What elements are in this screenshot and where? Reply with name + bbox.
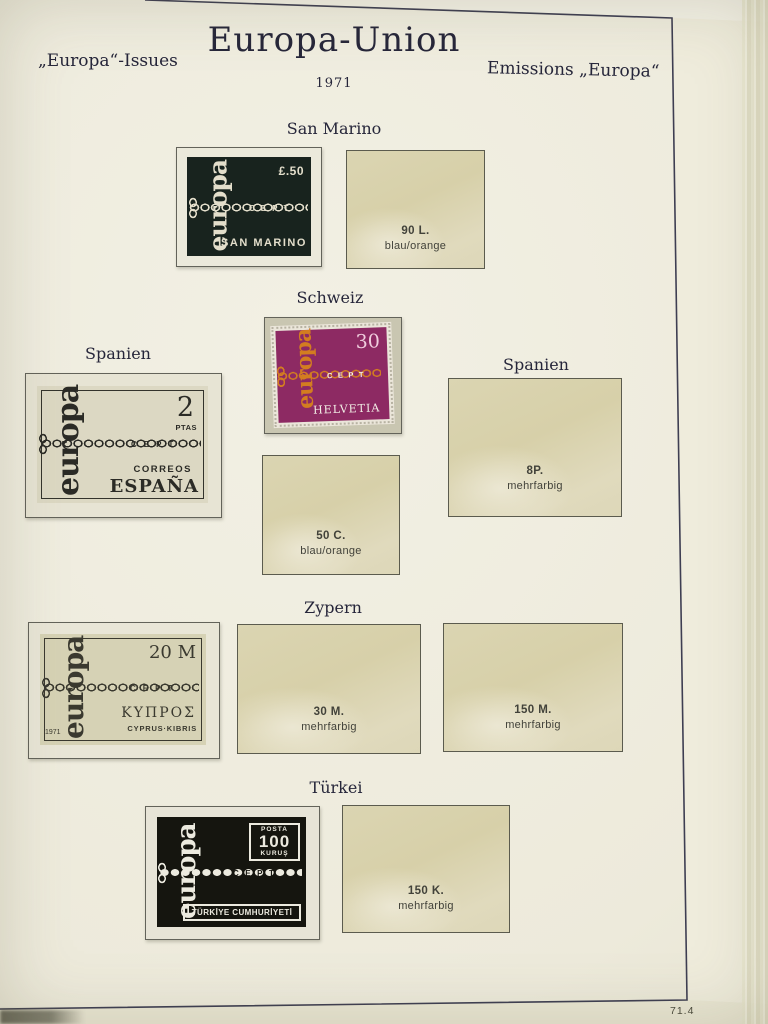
stamp-cept-text: CEPT xyxy=(249,204,294,213)
stamp-country-line2: CYPRUS·KIBRIS xyxy=(127,724,197,733)
placeholder-color-note: mehrfarbig xyxy=(449,480,621,492)
placeholder-text: 50 C. blau/orange xyxy=(263,530,399,557)
page-title: Europa-Union xyxy=(208,20,461,60)
stamp-value-unit: KURUŞ xyxy=(251,850,298,857)
stamp-value: 20 M xyxy=(149,642,196,663)
placeholder-color-note: mehrfarbig xyxy=(238,721,420,733)
stamp-zypern: europa 20 M CEPT ΚΥΠΡΟΣ CYPRUS·KIBRIS 19… xyxy=(40,634,206,745)
placeholder-text: 8P. mehrfarbig xyxy=(449,465,621,492)
placeholder-text: 30 M. mehrfarbig xyxy=(238,706,420,733)
placeholder-san-marino: 90 L. blau/orange xyxy=(346,150,485,269)
stamp-mount-tuerkei: europa POSTA 100 KURUŞ CEPT TÜRKİYE CUMH… xyxy=(145,806,320,940)
stamp-cept-text: CEPT xyxy=(130,684,179,693)
album-page-photo: „Europa“-Issues Europa-Union 1971 Emissi… xyxy=(0,0,768,1024)
section-heading-schweiz: Schweiz xyxy=(297,288,364,307)
stamp-country: SAN MARINO xyxy=(221,237,307,249)
stamp-country-line1: CORREOS xyxy=(133,464,192,475)
page-number: 71.4 xyxy=(670,1005,694,1017)
stamp-mount-schweiz: europa 30 CEPT HELVETIA xyxy=(264,317,402,434)
stamp-country: TÜRKİYE CUMHURİYETİ xyxy=(183,904,301,921)
section-heading-san-marino: San Marino xyxy=(287,119,382,138)
chain-knot xyxy=(40,676,52,700)
placeholder-value: 150 K. xyxy=(343,885,509,897)
placeholder-value: 30 M. xyxy=(238,706,420,718)
placeholder-value: 50 C. xyxy=(263,530,399,542)
placeholder-text: 150 M. mehrfarbig xyxy=(444,704,622,731)
stamp-cept-text: CEPT xyxy=(327,370,369,380)
stamp-value: £.50 xyxy=(279,164,304,178)
placeholder-value: 90 L. xyxy=(347,225,484,237)
placeholder-zypern-1: 30 M. mehrfarbig xyxy=(237,624,421,754)
stamp-spanien: europa 2 PTAS CEPT CORREOS ESPAÑA xyxy=(37,386,208,503)
top-left-label: „Europa“-Issues xyxy=(38,51,178,71)
placeholder-text: 150 K. mehrfarbig xyxy=(343,885,509,912)
stamp-mount-spanien: europa 2 PTAS CEPT CORREOS ESPAÑA xyxy=(25,373,222,518)
placeholder-schweiz: 50 C. blau/orange xyxy=(262,455,400,575)
placeholder-tuerkei: 150 K. mehrfarbig xyxy=(342,805,510,933)
stamp-value: 30 xyxy=(355,330,380,353)
stamp-country: HELVETIA xyxy=(304,401,389,417)
placeholder-zypern-2: 150 M. mehrfarbig xyxy=(443,623,623,752)
chain-knot xyxy=(187,196,199,220)
stamp-country-line2: ESPAÑA xyxy=(110,476,199,497)
section-heading-zypern: Zypern xyxy=(304,598,362,617)
top-right-label: Emissions „Europa“ xyxy=(487,58,660,82)
placeholder-text: 90 L. blau/orange xyxy=(347,225,484,252)
section-heading-tuerkei: Türkei xyxy=(310,778,363,797)
stamp-schweiz: europa 30 CEPT HELVETIA xyxy=(275,327,389,423)
album-page-content: „Europa“-Issues Europa-Union 1971 Emissi… xyxy=(0,0,768,1024)
stamp-value-unit: PTAS xyxy=(176,423,197,432)
photo-artifact xyxy=(0,1010,85,1024)
stamp-year: 1971 xyxy=(45,729,61,736)
chain-knot xyxy=(275,365,288,389)
placeholder-color-note: mehrfarbig xyxy=(343,900,509,912)
placeholder-color-note: blau/orange xyxy=(263,545,399,557)
stamp-value-box: POSTA 100 KURUŞ xyxy=(249,823,300,861)
placeholder-color-note: mehrfarbig xyxy=(444,719,622,731)
chain-motif xyxy=(159,865,302,880)
placeholder-color-note: blau/orange xyxy=(347,240,484,252)
stamp-value: 2 xyxy=(177,394,194,421)
placeholder-value: 8P. xyxy=(449,465,621,477)
chain-knot xyxy=(156,861,168,885)
stamp-mount-san-marino: europa £.50 CEPT SAN MARINO xyxy=(176,147,322,267)
stamp-san-marino: europa £.50 CEPT SAN MARINO xyxy=(187,157,311,256)
stamp-tuerkei: europa POSTA 100 KURUŞ CEPT TÜRKİYE CUMH… xyxy=(157,817,306,927)
page-year: 1971 xyxy=(315,76,352,91)
stamp-country-line1: ΚΥΠΡΟΣ xyxy=(121,705,196,721)
placeholder-value: 150 M. xyxy=(444,704,622,716)
stamp-mount-zypern: europa 20 M CEPT ΚΥΠΡΟΣ CYPRUS·KIBRIS 19… xyxy=(28,622,220,759)
chain-knot xyxy=(37,432,49,456)
section-heading-spanien-right: Spanien xyxy=(503,355,569,374)
stamp-value: 100 xyxy=(251,833,298,850)
placeholder-spanien: 8P. mehrfarbig xyxy=(448,378,622,517)
stamp-schweiz-perforation: europa 30 CEPT HELVETIA xyxy=(270,322,394,428)
stamp-cept-text: CEPT xyxy=(233,869,280,878)
section-heading-spanien-left: Spanien xyxy=(85,344,151,363)
stamp-cept-text: CEPT xyxy=(131,440,180,449)
